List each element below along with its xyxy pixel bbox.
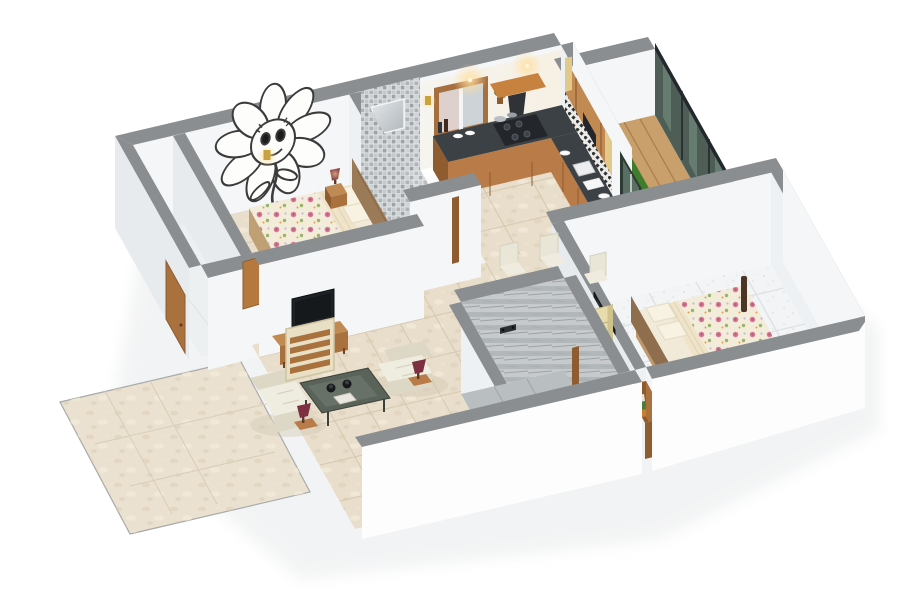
slatted-screen bbox=[286, 318, 334, 381]
floor-plan-render bbox=[0, 0, 900, 600]
door-post-1 bbox=[452, 196, 459, 264]
cooking-pot bbox=[494, 116, 506, 122]
floor-plan-canvas bbox=[0, 0, 900, 600]
wall-sconce-1 bbox=[257, 146, 277, 166]
wall-sconce-2 bbox=[420, 93, 436, 109]
bed-post bbox=[741, 276, 747, 312]
